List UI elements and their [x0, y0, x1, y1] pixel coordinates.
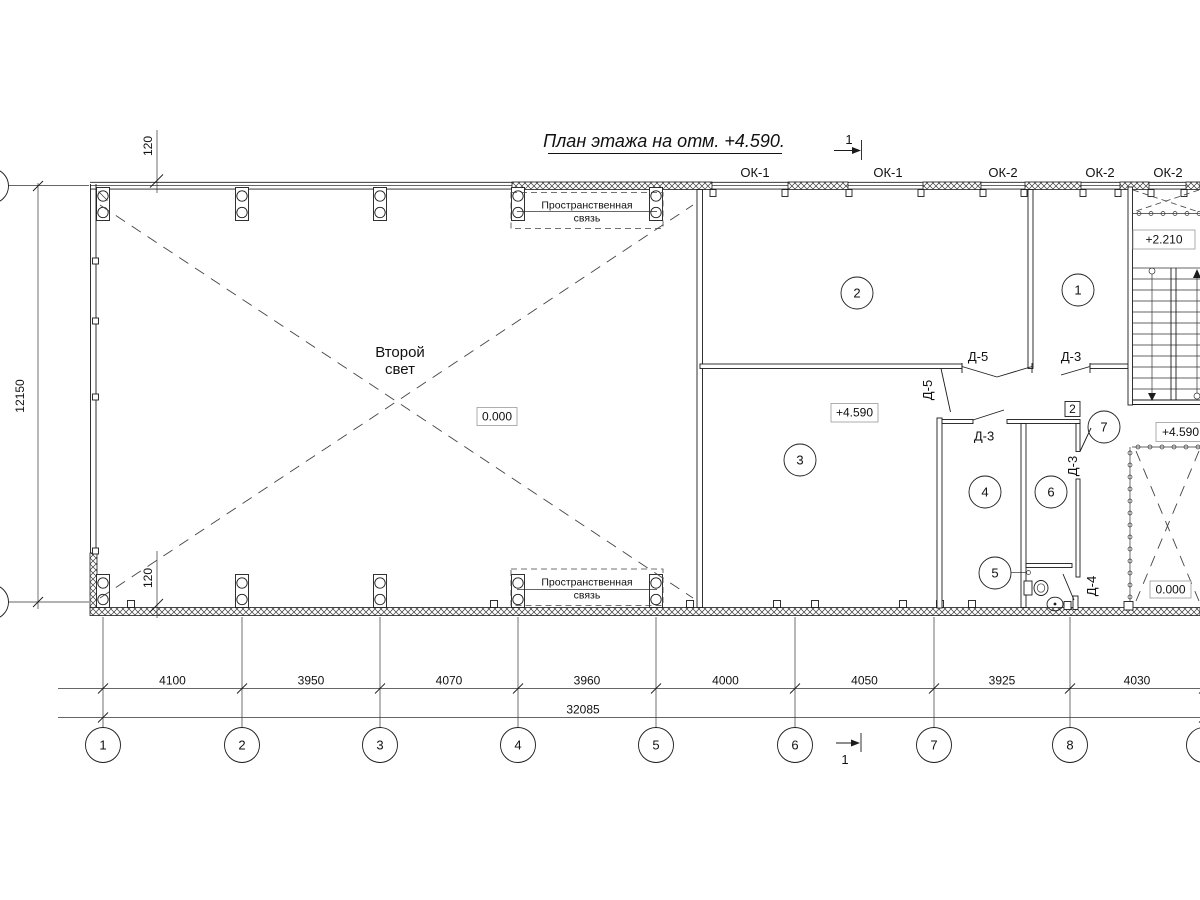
- spatial-tie-label: Пространственная: [541, 577, 632, 589]
- grid-axis-number: 3: [376, 738, 383, 753]
- door-leaf-d3-hall: [1061, 367, 1090, 376]
- grid-axis-number: 1: [99, 738, 106, 753]
- door-leaf-d3-room4: [973, 410, 1004, 420]
- spatial-tie-bottom: Пространственная связь: [511, 569, 663, 606]
- toilet-bowl: [1034, 581, 1048, 596]
- grid-axis-number: 5: [652, 738, 659, 753]
- section-mark-top: 1: [834, 132, 862, 160]
- grid-axis-number: 8: [1066, 738, 1073, 753]
- door-label: Д-5: [920, 380, 935, 400]
- stair-treads: [1133, 268, 1200, 405]
- drawing-title: План этажа на отм. +4.590.: [543, 131, 785, 151]
- door-leaf-d3-room6: [1080, 428, 1091, 452]
- door-label: Д-5: [968, 349, 988, 364]
- room-number: 7: [1100, 420, 1107, 435]
- elevation-label: 0.000: [482, 410, 512, 424]
- door-label: Д-3: [1065, 456, 1080, 476]
- window-label: ОК-2: [1153, 165, 1182, 180]
- dimension-segment: 4050: [851, 674, 878, 688]
- room-number: 4: [981, 485, 988, 500]
- toilet-tank: [1024, 581, 1032, 595]
- dimension-height: 12150: [13, 379, 27, 413]
- stair-direction-arrows: [1148, 268, 1200, 401]
- wc-fixtures: [1024, 581, 1063, 611]
- room-number: 6: [1047, 485, 1054, 500]
- floor-plan-canvas: Пространственная связь Пространственная …: [0, 0, 1200, 900]
- section-mark-label: 1: [845, 132, 852, 147]
- grid-axis-number: 4: [514, 738, 521, 753]
- door-leaf-d5: [962, 367, 997, 378]
- door-label: Д-3: [974, 429, 994, 444]
- dimension-segment: 4030: [1124, 674, 1151, 688]
- room-numbers: 1 2 3 4 5 6 7 2: [784, 274, 1120, 589]
- room-number: 5: [991, 566, 998, 581]
- spatial-tie-top: Пространственная связь: [511, 193, 663, 229]
- bottom-wall-ties: [128, 601, 976, 608]
- door-leaf-d4: [1063, 574, 1074, 600]
- hall-cross-lines: [100, 205, 693, 598]
- opening-labels: ОК-1 ОК-1 ОК-2 ОК-2 ОК-2 Д-5 Д-3 Д-3 Д-5…: [740, 165, 1182, 596]
- partition-tag: 2: [1069, 402, 1076, 416]
- dimension-segment: 4100: [159, 674, 186, 688]
- second-light-note: свет: [385, 361, 415, 378]
- room-number: 1: [1074, 283, 1081, 298]
- door-leaf-d5-side: [941, 369, 951, 413]
- room-number: 2: [853, 286, 860, 301]
- grid-axis-number: 2: [238, 738, 245, 753]
- dimension-segment: 3960: [574, 674, 601, 688]
- window-jambs: [710, 190, 1187, 197]
- dimension-segment: 4000: [712, 674, 739, 688]
- window-label: ОК-2: [988, 165, 1017, 180]
- section-mark-bottom: 1: [836, 733, 861, 767]
- elevation-label: +2.210: [1145, 233, 1182, 247]
- door-label: Д-4: [1084, 576, 1099, 596]
- outer-walls: [90, 182, 1200, 616]
- elevation-label: +4.590: [1162, 425, 1199, 439]
- door-label: Д-3: [1061, 349, 1081, 364]
- window-label: ОК-1: [740, 165, 769, 180]
- grid-axes: 1 2 3 4 5 6 7 8: [86, 728, 1200, 763]
- window-label: ОК-1: [873, 165, 902, 180]
- elevation-marks: 0.000 +4.590 +2.210 +4.590 0.000: [477, 230, 1200, 598]
- floor-plan-page: Пространственная связь Пространственная …: [0, 0, 1200, 900]
- elevation-label: 0.000: [1155, 583, 1185, 597]
- staircase: [1133, 190, 1200, 405]
- dimension-segment: 4070: [436, 674, 463, 688]
- spatial-tie-label: Пространственная: [541, 200, 632, 212]
- elevation-label: +4.590: [836, 406, 873, 420]
- spatial-tie-label: связь: [574, 590, 601, 602]
- grid-axis-number: 6: [791, 738, 798, 753]
- dimension-offset: 120: [141, 136, 155, 156]
- dimension-segment: 3950: [298, 674, 325, 688]
- interior-walls: [697, 187, 1133, 610]
- dimension-total: 32085: [566, 703, 600, 717]
- door-leaf-d5: [997, 367, 1032, 378]
- window-label: ОК-2: [1085, 165, 1114, 180]
- section-mark-label: 1: [841, 752, 848, 767]
- room-number: 3: [796, 453, 803, 468]
- dimension-segment: 3925: [989, 674, 1016, 688]
- spatial-tie-label: связь: [574, 213, 601, 225]
- dimension-offset: 120: [141, 568, 155, 588]
- second-light-note: Второй: [375, 344, 425, 361]
- grid-axis-number: 7: [930, 738, 937, 753]
